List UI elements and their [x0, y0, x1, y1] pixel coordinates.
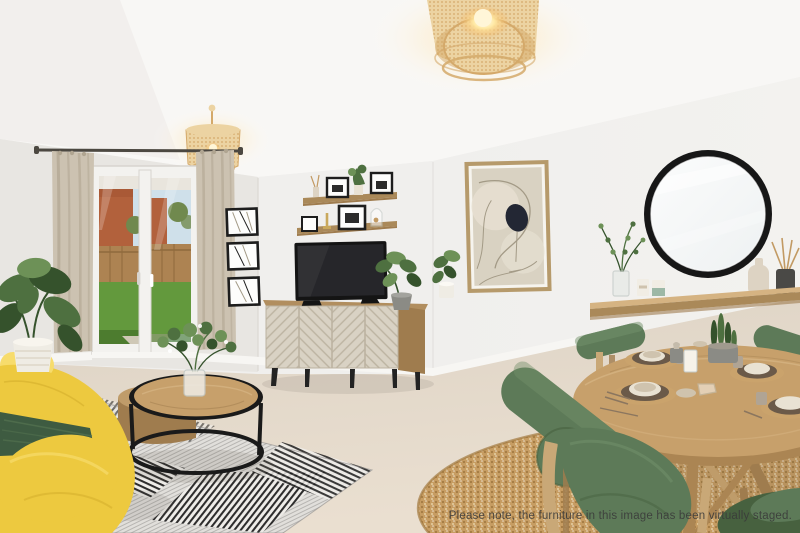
- pendant-light-large: [427, 0, 539, 80]
- gallery-frames: [227, 208, 260, 305]
- staged-living-room-photo: Please note, the furniture in this image…: [0, 0, 800, 533]
- tv-console: [262, 300, 434, 394]
- tv: [294, 241, 387, 306]
- abstract-art: [464, 160, 551, 293]
- staging-disclaimer: Please note, the furniture in this image…: [449, 510, 792, 522]
- room-illustration: [0, 0, 800, 533]
